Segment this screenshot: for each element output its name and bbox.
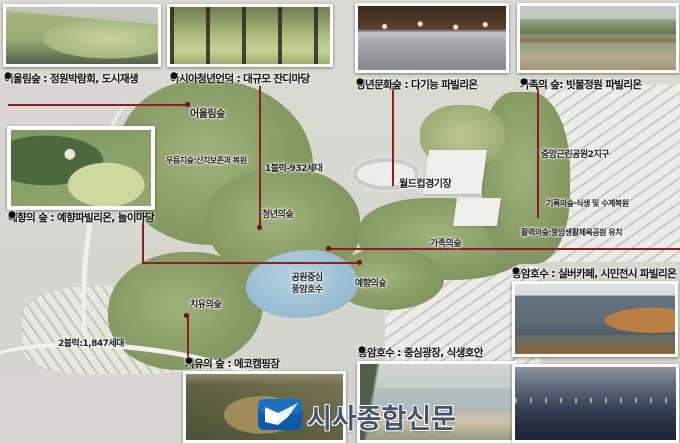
map-label-udeumji: 우듬지숲:산지보존과 복원 [166, 155, 246, 166]
photo-pungam-night-art [515, 367, 676, 440]
leader-dot-healing [184, 313, 189, 318]
caption-yehyang-text: 예향의 숲 : 예향파빌리온, 놀이마당 [8, 212, 154, 224]
bullet-icon: ● [170, 71, 177, 81]
leader-line-eoullim [8, 104, 186, 106]
photo-eoullim-art [6, 7, 158, 64]
map-label-eoullim: 어울림숲 [190, 105, 225, 120]
caption-healing: ●치유의 숲 : 에코캠핑장 [185, 356, 279, 371]
caption-pungam-plaza: ●풍암호수 : 중심광장, 식생호안 [358, 345, 483, 360]
photo-pungam-cafe-art [515, 284, 675, 354]
photo-yehyang-art [11, 130, 151, 206]
caption-asia-youth-text: 아시아청년언덕 : 대규모 잔디마당 [170, 73, 310, 85]
caption-asia-youth: ●아시아청년언덕 : 대규모 잔디마당 [170, 71, 310, 86]
photo-pungam-cafe [512, 281, 678, 357]
masterplan-collage: 어울림숲 우듬지숲:산지보존과 복원 1블럭-932세대 청년의숲 월드컵경기장… [0, 0, 680, 443]
caption-pungam-cafe: ●풍암호수 : 실버카페, 시민전시 파빌리온 [512, 266, 676, 281]
map-label-family-forest: 가족의숲 [430, 236, 461, 249]
bullet-icon: ● [520, 77, 527, 87]
map-label-block1: 1블럭-932세대 [265, 161, 322, 174]
caption-healing-text: 치유의 숲 : 에코캠핑장 [185, 358, 279, 370]
photo-eoullim-forest [3, 4, 161, 67]
bullet-icon: ● [358, 345, 365, 355]
photo-family-art [520, 6, 676, 70]
map-label-healing-forest: 치유의숲 [190, 297, 221, 310]
bullet-icon: ● [512, 266, 519, 276]
leader-line-healing [187, 316, 189, 358]
leader-dot-lakeshore [326, 246, 331, 251]
leader-line-yehyang-h [142, 262, 360, 264]
photo-youth-culture-art [358, 6, 506, 70]
photo-asia-youth-art [170, 7, 330, 64]
map-label-youth-forest: 청년의숲 [262, 207, 293, 220]
caption-pungam-plaza-text: 풍암호수 : 중심광장, 식생호안 [358, 347, 483, 359]
photo-asia-youth-hill [167, 4, 333, 67]
photo-family-forest [517, 3, 679, 73]
leader-dot-youth [257, 225, 262, 230]
bullet-icon: ● [8, 210, 15, 220]
map-label-jungang-park: 중앙근린공원2지구 [541, 147, 609, 160]
bullet-icon: ● [185, 356, 192, 366]
photo-youth-culture-forest [355, 3, 509, 73]
map-label-lake-center: 공원중심 풍암호수 [280, 272, 334, 296]
leader-line-youth [259, 86, 261, 226]
newspaper-logo-text: 시사종합신문 [307, 397, 456, 436]
map-label-block2: 2블럭:1,847세대 [58, 336, 124, 349]
caption-family: ●가족의 숲: 빗물정원 파빌리온 [520, 77, 642, 92]
caption-yehyang: ●예향의 숲 : 예향파빌리온, 놀이마당 [8, 210, 154, 225]
map-label-hwallyeok: 활력의숲:풍암생활체육공원 유치 [521, 227, 622, 238]
bullet-icon: ● [4, 71, 11, 81]
leader-line-family [537, 86, 539, 218]
newspaper-logo-icon [257, 397, 304, 432]
caption-youth-culture: ●청년문화숲 : 다기능 파빌리온 [356, 77, 478, 92]
photo-pungam-night [512, 364, 679, 443]
caption-eoullim: ●어울림숲 : 정원박람회, 도시재생 [4, 71, 138, 86]
leader-line-lakeshore [330, 248, 680, 250]
map-building-box2 [453, 198, 501, 226]
caption-pungam-cafe-text: 풍암호수 : 실버카페, 시민전시 파빌리온 [512, 268, 676, 280]
caption-youth-culture-text: 청년문화숲 : 다기능 파빌리온 [356, 79, 478, 91]
map-label-yehyang-forest: 예향의숲 [355, 276, 386, 289]
map-label-lake-line1: 공원중심 [280, 272, 334, 284]
photo-yehyang-forest [7, 126, 155, 210]
map-label-lake-line2: 풍암호수 [280, 284, 334, 296]
leader-line-culture [392, 86, 394, 186]
map-label-worldcup: 월드컵경기장 [399, 175, 451, 190]
leader-dot-yehyang [357, 260, 362, 265]
map-label-girok: 기록의숲·식생 및 수계복원 [546, 198, 629, 209]
bullet-icon: ● [356, 77, 363, 87]
caption-eoullim-text: 어울림숲 : 정원박람회, 도시재생 [4, 73, 138, 85]
leader-line-yehyang-v [142, 222, 144, 264]
caption-family-text: 가족의 숲: 빗물정원 파빌리온 [520, 79, 642, 91]
